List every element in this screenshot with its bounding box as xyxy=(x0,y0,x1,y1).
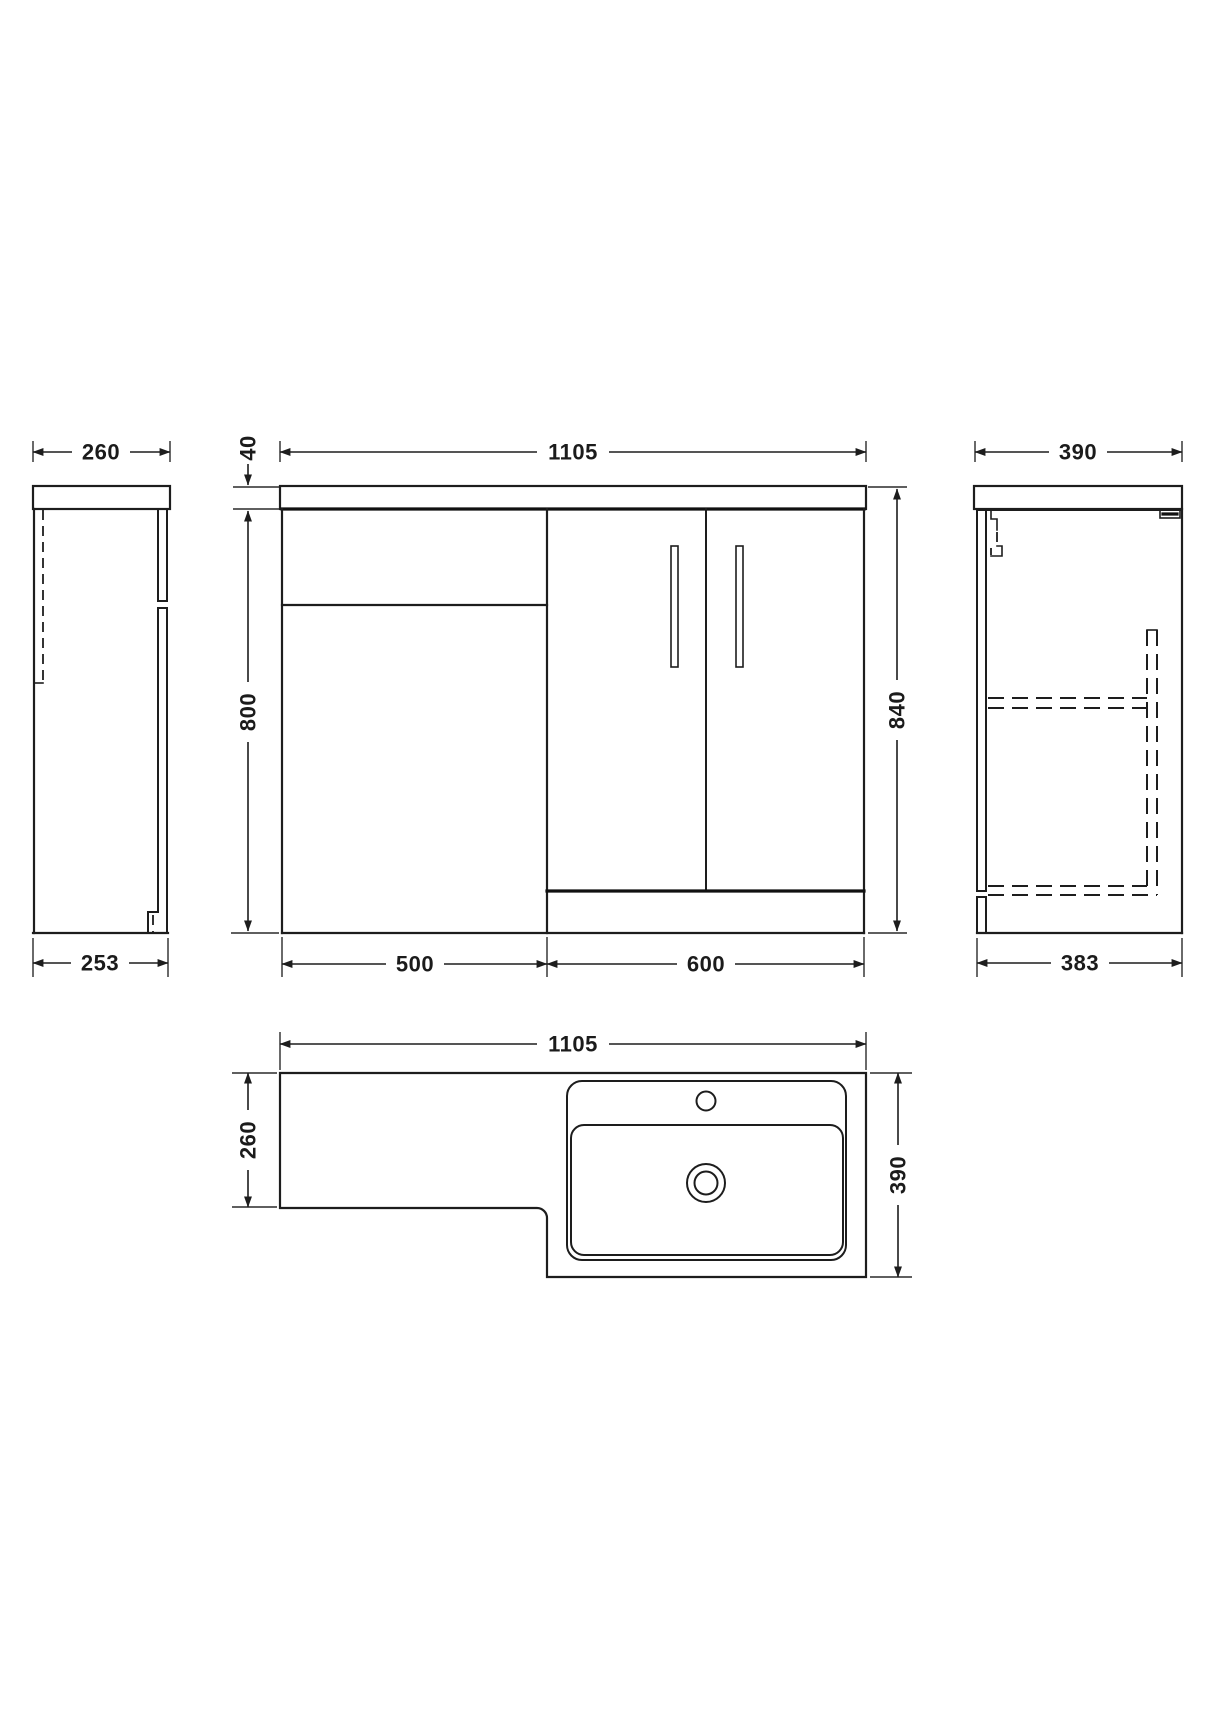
tap-hole xyxy=(697,1092,716,1111)
left-side-view: 260 253 xyxy=(33,439,170,977)
front-door-handle-left xyxy=(671,546,678,667)
dim-front-wc-width: 500 xyxy=(396,952,434,977)
left-view-front-panel xyxy=(148,510,167,933)
plan-dim-wc-depth: 260 xyxy=(232,1073,277,1207)
technical-drawing-canvas: 260 253 1105 xyxy=(0,0,1214,1718)
dim-front-total-height: 840 xyxy=(885,691,910,729)
front-dim-sections: 500 600 xyxy=(282,937,864,977)
waste-inner xyxy=(695,1172,718,1195)
dim-front-width: 1105 xyxy=(548,440,598,465)
front-door-handle-right xyxy=(736,546,743,667)
left-view-dim-depth-top: 260 xyxy=(33,439,170,465)
front-countertop xyxy=(280,486,866,509)
basin-bowl xyxy=(571,1125,843,1255)
right-view-door-panel xyxy=(977,510,986,933)
dim-front-vanity-width: 600 xyxy=(687,952,725,977)
front-dim-counter-thickness: 40 xyxy=(233,435,279,509)
vanity-unit-dimension-drawing: 260 253 1105 xyxy=(0,0,1214,1718)
plan-counter-outline xyxy=(280,1073,866,1277)
front-view: 1105 40 800 840 xyxy=(231,435,911,977)
right-view-hidden-shelf xyxy=(988,698,1147,708)
front-dim-cabinet-height: 800 xyxy=(231,511,279,933)
left-view-countertop xyxy=(33,486,170,509)
front-dim-width: 1105 xyxy=(280,439,866,465)
basin-outer-rim xyxy=(567,1081,846,1260)
waste-outer xyxy=(687,1164,725,1202)
plan-basin xyxy=(567,1081,846,1260)
dim-front-counter-thickness: 40 xyxy=(236,435,261,460)
dim-plan-basin-depth: 390 xyxy=(886,1156,911,1194)
plan-dim-basin-depth: 390 xyxy=(870,1073,912,1277)
dim-front-cabinet-height: 800 xyxy=(236,693,261,731)
front-dim-total-height: 840 xyxy=(868,487,911,933)
dim-right-depth-top: 390 xyxy=(1059,440,1097,465)
dim-plan-width: 1105 xyxy=(548,1032,598,1057)
plan-dim-width: 1105 xyxy=(280,1031,866,1070)
dim-plan-wc-depth: 260 xyxy=(236,1121,261,1159)
right-view-dim-depth-bottom: 383 xyxy=(977,938,1182,977)
left-view-dim-depth-bottom: 253 xyxy=(33,938,168,977)
right-view-fixing-clip xyxy=(1160,510,1180,518)
dim-left-depth-top: 260 xyxy=(82,440,120,465)
right-view-countertop xyxy=(974,486,1182,509)
dim-right-depth-bottom: 383 xyxy=(1061,951,1099,976)
right-view-hidden-back-and-bottom xyxy=(988,630,1157,895)
right-view-dim-depth-top: 390 xyxy=(975,439,1182,465)
right-view-hinge-detail xyxy=(991,511,1002,556)
right-side-view: 390 383 xyxy=(974,439,1182,977)
plan-view: 1105 260 390 xyxy=(232,1031,912,1277)
dim-left-depth-bottom: 253 xyxy=(81,951,119,976)
